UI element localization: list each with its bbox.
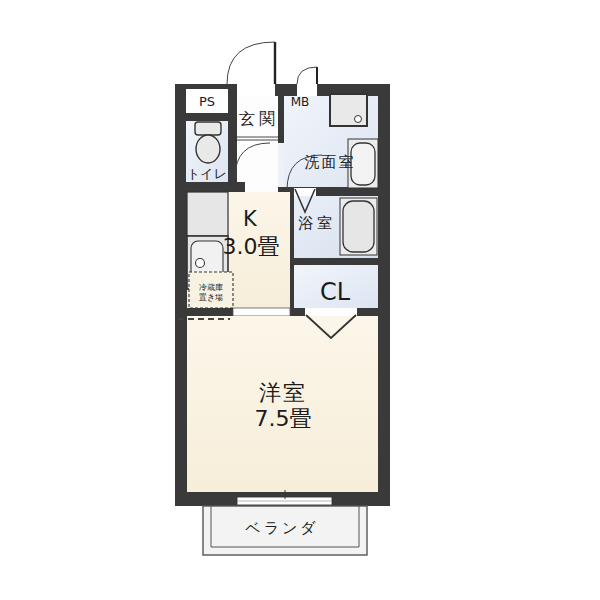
entrance-door-opening: [237, 84, 275, 96]
washroom-door-opening: [278, 143, 284, 187]
floor-plan-image: 冷蔵庫 置き場 PS MB トイレ 玄関 洗面室: [0, 0, 600, 600]
label-toilet: トイレ: [187, 166, 227, 181]
label-kitchen-size: 3.0畳: [223, 234, 280, 259]
label-bathroom: 浴室: [298, 214, 336, 232]
label-entrance: 玄関: [239, 109, 279, 128]
drain-icon: [355, 116, 362, 123]
refrigerator-label-line2: 置き場: [198, 293, 223, 302]
kitchen-westroom-opening: [233, 308, 290, 316]
hall-kitchen-opening: [245, 182, 278, 192]
washing-machine-pan: [330, 94, 367, 126]
label-ps: PS: [199, 94, 215, 109]
label-mb: MB: [291, 95, 310, 109]
label-kitchen: K: [243, 207, 258, 231]
label-closet: CL: [320, 278, 351, 306]
label-veranda: ベランダ: [245, 519, 318, 537]
bathtub: [340, 198, 377, 255]
closet-door-opening: [305, 308, 357, 316]
refrigerator-space: 冷蔵庫 置き場: [189, 272, 233, 308]
toilet-fixture: [195, 122, 221, 163]
label-washroom: 洗面室: [305, 153, 356, 171]
sink-faucet-icon: [196, 259, 205, 268]
floor-plan-svg: 冷蔵庫 置き場 PS MB トイレ 玄関 洗面室: [0, 0, 600, 600]
label-western-room: 洋室: [259, 380, 307, 405]
refrigerator-label-line1: 冷蔵庫: [199, 283, 223, 292]
label-western-room-size: 7.5畳: [255, 406, 312, 431]
